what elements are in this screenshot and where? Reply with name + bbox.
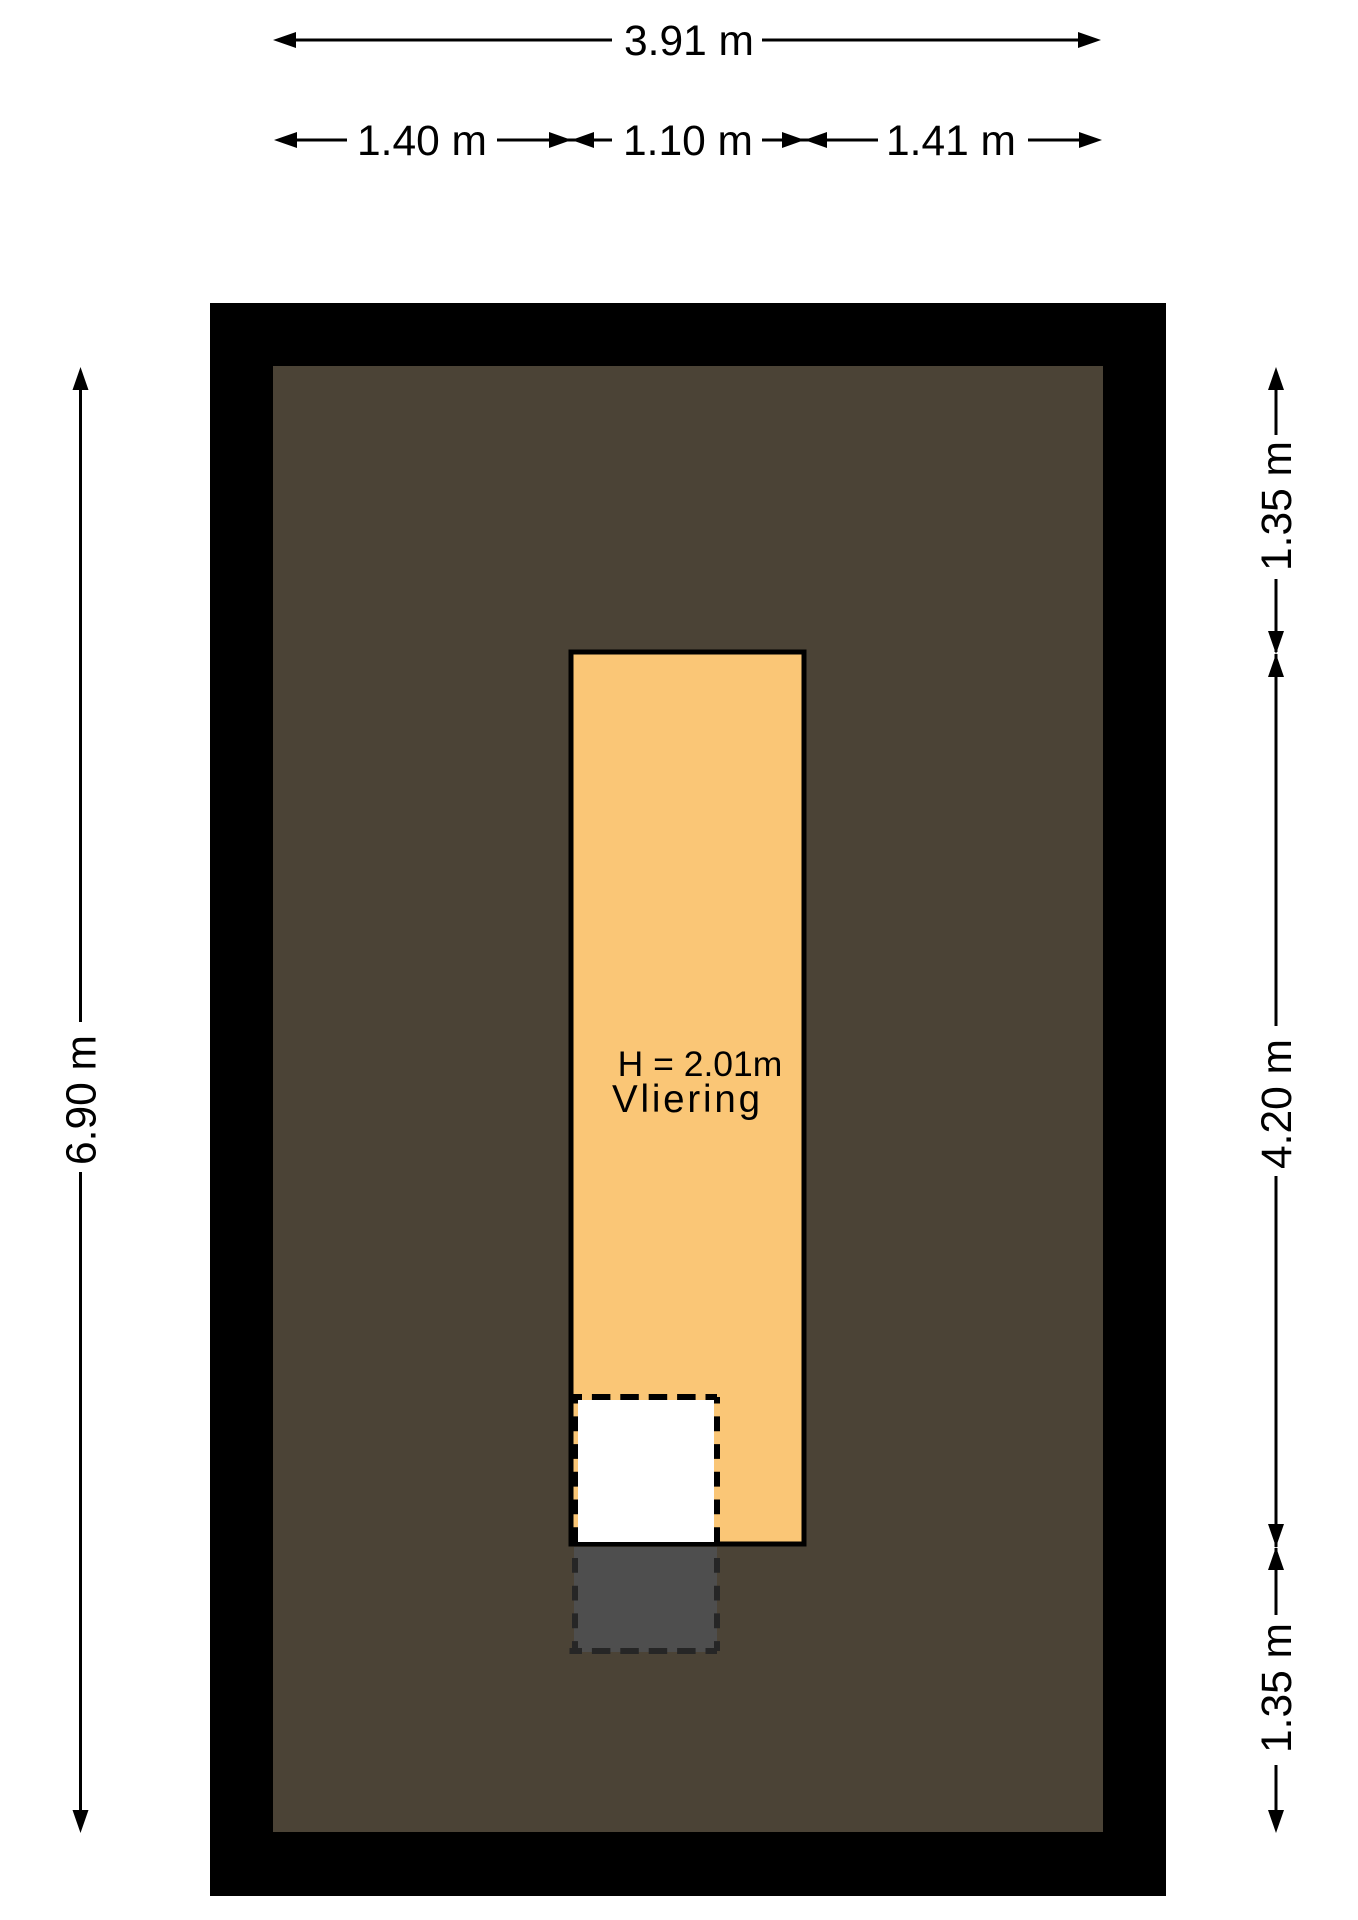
svg-text:1.40 m: 1.40 m <box>357 118 487 165</box>
svg-text:4.20 m: 4.20 m <box>1254 1039 1301 1169</box>
svg-text:1.35 m: 1.35 m <box>1254 1623 1301 1753</box>
svg-text:1.35 m: 1.35 m <box>1254 441 1301 571</box>
svg-text:1.41 m: 1.41 m <box>886 118 1016 165</box>
svg-text:1.10 m: 1.10 m <box>623 118 753 165</box>
svg-text:6.90 m: 6.90 m <box>59 1035 106 1165</box>
svg-text:3.91 m: 3.91 m <box>624 18 754 65</box>
svg-text:Vliering: Vliering <box>612 1078 763 1121</box>
